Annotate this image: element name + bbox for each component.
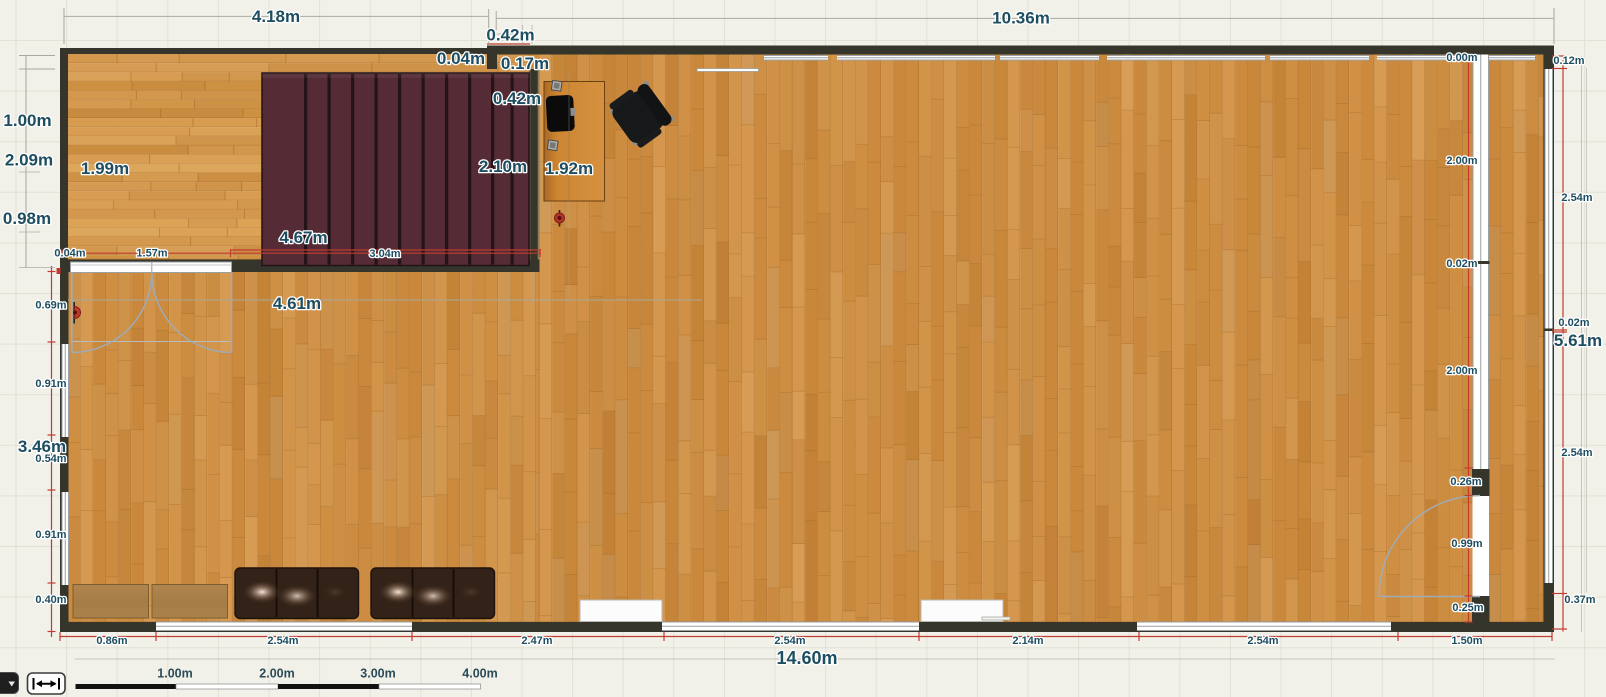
svg-text:0.91m: 0.91m [35,378,66,390]
svg-text:2.54m: 2.54m [267,635,298,647]
svg-text:3.04m: 3.04m [369,248,400,260]
svg-text:2.14m: 2.14m [1012,635,1043,647]
svg-text:0.98m: 0.98m [3,209,51,228]
svg-text:14.60m: 14.60m [776,648,837,668]
svg-text:3.00m: 3.00m [360,667,395,681]
svg-text:2.54m: 2.54m [1561,192,1592,204]
svg-text:10.36m: 10.36m [992,9,1050,28]
svg-text:2.54m: 2.54m [1247,635,1278,647]
svg-text:4.67m: 4.67m [279,228,327,247]
svg-text:2.10m: 2.10m [479,157,527,176]
svg-text:2.00m: 2.00m [1446,365,1477,377]
svg-text:0.02m: 0.02m [1446,258,1477,270]
svg-text:0.69m: 0.69m [35,300,66,312]
svg-text:2.09m: 2.09m [5,151,53,170]
svg-text:2.47m: 2.47m [521,635,552,647]
svg-text:1.00m: 1.00m [3,111,51,130]
svg-text:0.04m: 0.04m [437,49,485,68]
svg-text:0.12m: 0.12m [1553,55,1584,67]
svg-text:2.54m: 2.54m [774,635,805,647]
svg-text:0.37m: 0.37m [1564,594,1595,606]
svg-text:0.42m: 0.42m [486,26,534,45]
svg-text:1.99m: 1.99m [81,159,129,178]
svg-text:0.26m: 0.26m [1450,476,1481,488]
svg-text:1.00m: 1.00m [157,667,192,681]
svg-text:2.00m: 2.00m [259,667,294,681]
svg-text:0.00m: 0.00m [1446,52,1477,64]
svg-text:4.61m: 4.61m [273,294,321,313]
svg-text:1.50m: 1.50m [1451,635,1482,647]
svg-text:1.57m: 1.57m [136,248,167,260]
svg-text:0.40m: 0.40m [35,594,66,606]
svg-text:0.42m: 0.42m [493,89,541,108]
svg-text:4.00m: 4.00m [462,667,497,681]
svg-text:0.17m: 0.17m [501,54,549,73]
svg-text:0.25m: 0.25m [1452,602,1483,614]
svg-text:4.18m: 4.18m [252,7,300,26]
svg-text:0.86m: 0.86m [96,635,127,647]
svg-text:5.61m: 5.61m [1554,331,1602,350]
svg-text:0.04m: 0.04m [54,248,85,260]
svg-text:0.91m: 0.91m [35,529,66,541]
svg-text:0.99m: 0.99m [1451,538,1482,550]
svg-text:2.00m: 2.00m [1446,155,1477,167]
svg-text:1.92m: 1.92m [545,159,593,178]
svg-text:0.02m: 0.02m [1558,317,1589,329]
svg-text:0.54m: 0.54m [35,453,66,465]
svg-text:2.54m: 2.54m [1561,447,1592,459]
